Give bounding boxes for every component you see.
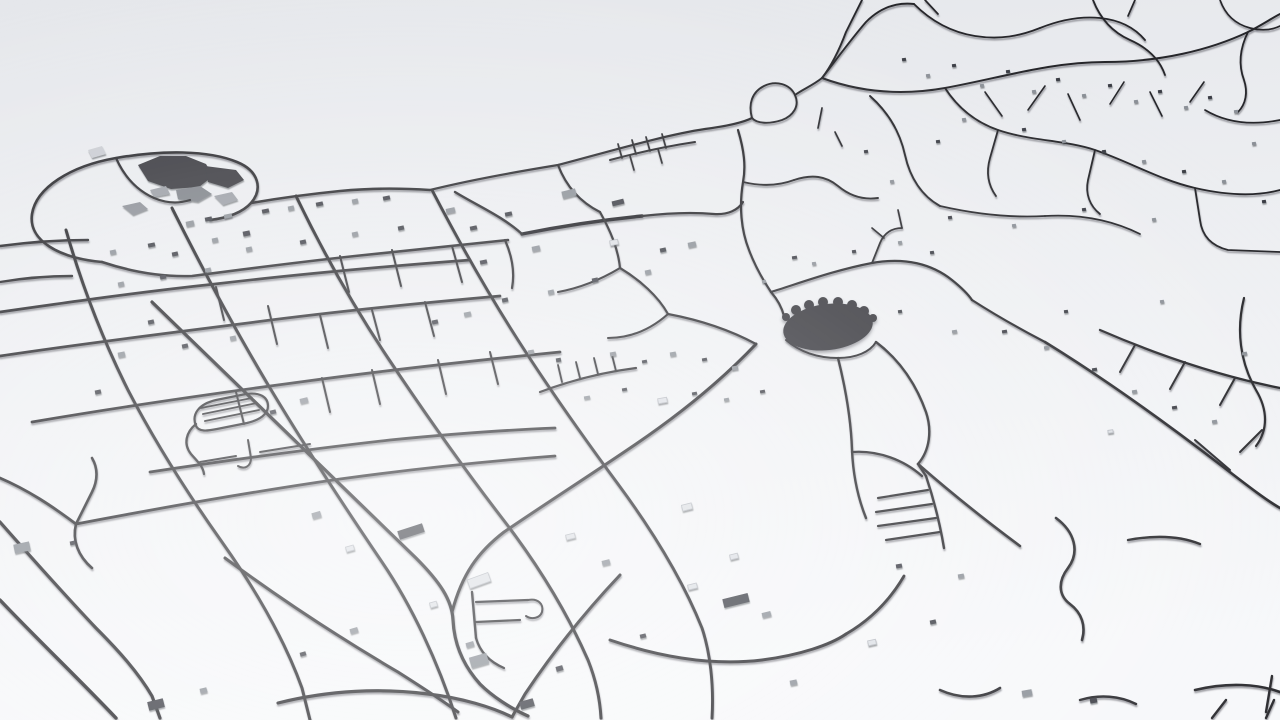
building [936,140,940,144]
building [1022,128,1026,132]
building [868,639,877,646]
city-map-3d-render [0,0,1280,720]
building [1134,100,1138,104]
building [952,64,956,68]
map-canvas [0,0,1280,720]
building [1252,142,1256,146]
building [1142,160,1146,164]
building [1108,84,1112,88]
building [1006,70,1010,74]
building [1012,224,1016,228]
building [930,251,934,255]
building [812,262,816,266]
building [852,250,856,254]
building [898,310,902,314]
building [1158,90,1162,94]
building [898,241,902,245]
building [610,239,619,246]
building [556,358,562,363]
building [1064,310,1068,314]
building [1056,78,1060,82]
building [1108,430,1113,434]
building [1208,96,1212,100]
building [1182,170,1186,174]
building [1262,200,1266,204]
building [962,118,966,122]
building [1152,218,1156,222]
building [890,180,894,184]
building [926,74,930,78]
building [1222,180,1226,184]
building [1032,90,1036,94]
building [902,58,906,62]
building [1234,110,1238,114]
building [1160,300,1164,304]
building [948,216,952,220]
building [1062,140,1066,144]
building [980,84,984,88]
building [658,397,668,403]
building [1082,94,1086,98]
ground-plane [0,0,1280,720]
building [1102,150,1106,154]
building [1184,106,1188,110]
building [1082,208,1086,212]
building [864,150,868,154]
building [762,280,766,284]
